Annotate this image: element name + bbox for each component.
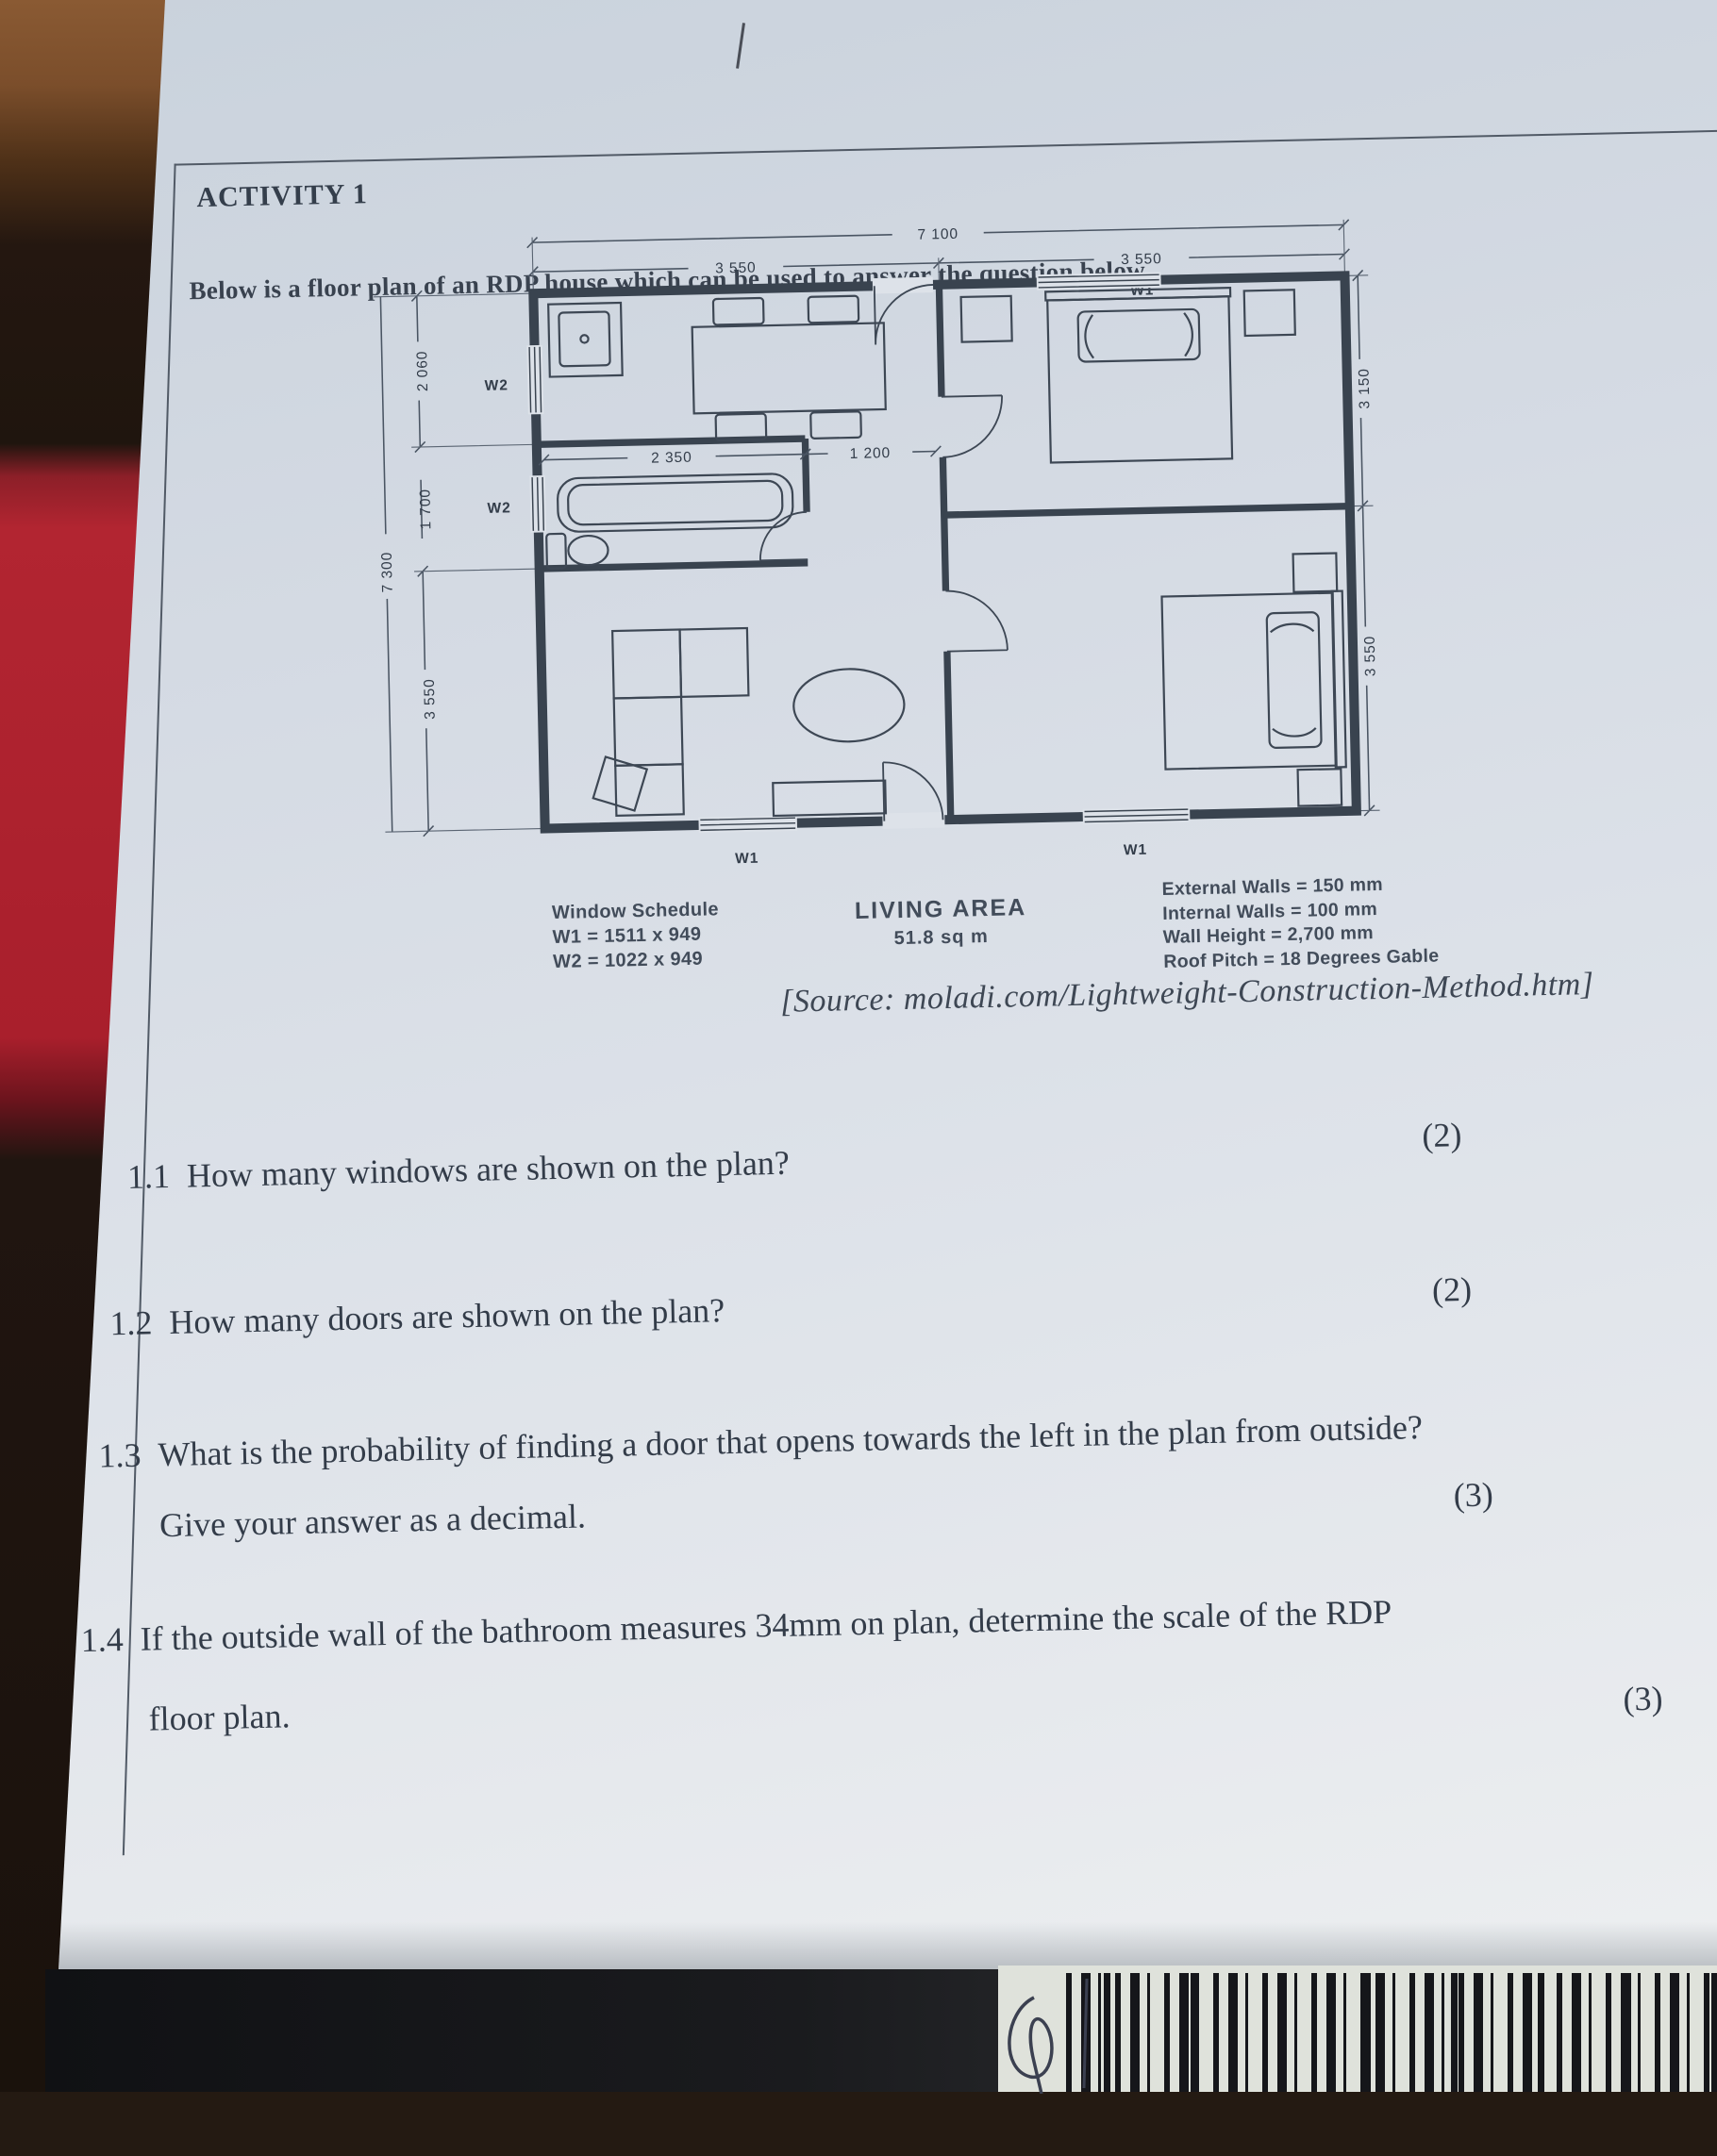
- question-1-4-marks: (3): [1623, 1679, 1663, 1719]
- window-label-w2-kitchen: W2: [485, 377, 509, 394]
- question-1-2-marks: (2): [1432, 1269, 1473, 1310]
- question-1-3-marks: (3): [1453, 1474, 1493, 1515]
- coffee-table: [792, 668, 905, 742]
- back-door: [883, 761, 943, 821]
- dim-hall-width: 1 200: [849, 445, 891, 462]
- window-label-w1-living: W1: [735, 851, 759, 868]
- dim-top-right: 3 550: [1121, 251, 1162, 268]
- paper-bottom-shadow: [38, 1922, 1717, 1971]
- dining-table-and-chairs: [692, 295, 886, 440]
- dim-right-top: 3 150: [1356, 368, 1373, 409]
- bathtub: [558, 473, 793, 532]
- dim-kitchen-width: 2 350: [651, 450, 692, 467]
- barcode-sticker: [998, 1965, 1717, 2092]
- question-1-4-number: 1.4: [80, 1620, 124, 1659]
- dim-left-mid: 1 700: [417, 489, 434, 530]
- dim-left-top: 2 060: [414, 350, 431, 391]
- dim-top-left: 3 550: [715, 260, 757, 277]
- bathroom-side-wall: [805, 439, 807, 512]
- window-label-w1-bedroom2: W1: [1124, 842, 1148, 859]
- dim-left-bottom: 3 550: [422, 678, 439, 720]
- window-schedule-title: Window Schedule: [552, 897, 719, 925]
- bedroom1-door: [942, 395, 1003, 456]
- pen-stroke-mark: [730, 21, 750, 70]
- dim-overall-depth: 7 300: [379, 552, 396, 593]
- centre-internal-wall: [940, 289, 951, 815]
- living-area-block: LIVING AREA 51.8 sq m: [818, 893, 1064, 952]
- bedroom2-bed: [1161, 553, 1347, 808]
- question-1-4-line2: floor plan.: [148, 1696, 291, 1738]
- pen-scribble: [985, 1971, 1183, 2094]
- bedroom-divider-wall: [944, 506, 1350, 515]
- worksheet-paper: ACTIVITY 1 Below is a floor plan of an R…: [0, 0, 1717, 2092]
- question-1-3-number: 1.3: [98, 1436, 142, 1475]
- tv-unit: [773, 781, 886, 816]
- window-schedule-w1: W1 = 1511 x 949: [552, 921, 719, 950]
- dim-right-bottom: 3 550: [1362, 636, 1379, 677]
- question-1-2-number: 1.2: [109, 1303, 153, 1342]
- sofa: [612, 628, 751, 816]
- bedroom1-bed: [960, 287, 1297, 465]
- toilet: [546, 533, 608, 569]
- bathroom-door: [759, 512, 808, 560]
- window-label-w2-bathroom: W2: [487, 500, 511, 517]
- dim-overall-width: 7 100: [917, 226, 959, 243]
- question-1-1-marks: (2): [1422, 1115, 1462, 1155]
- wall-specs-block: External Walls = 150 mm Internal Walls =…: [1161, 872, 1439, 975]
- floor-plan-drawing: 7 100 3 550 3 550 W1 7 300 2 060 1 700 3…: [355, 210, 1389, 949]
- window-schedule-block: Window Schedule W1 = 1511 x 949 W2 = 102…: [552, 897, 721, 974]
- window-schedule-w2: W2 = 1022 x 949: [553, 946, 720, 974]
- living-area-title: LIVING AREA: [818, 893, 1064, 926]
- activity-title: ACTIVITY 1: [196, 178, 368, 214]
- kitchen-sink: [548, 303, 623, 377]
- bedroom2-door: [945, 589, 1007, 651]
- page-content: ACTIVITY 1 Below is a floor plan of an R…: [0, 0, 1717, 2111]
- question-1-1-number: 1.1: [127, 1157, 171, 1196]
- floor-plan-svg: 7 100 3 550 3 550 W1 7 300 2 060 1 700 3…: [355, 210, 1389, 949]
